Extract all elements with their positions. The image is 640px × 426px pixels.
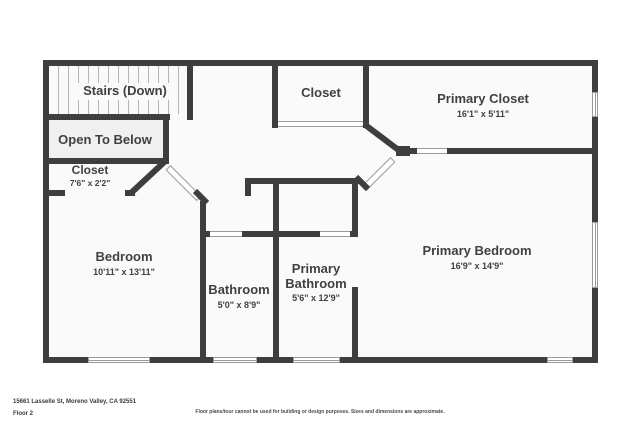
room-name-bedroom: Bedroom [93, 250, 155, 265]
door-bathroom [210, 231, 242, 237]
door-primary-closet [417, 148, 447, 154]
window-bedroom [88, 357, 150, 363]
wall-hall-top [245, 178, 360, 184]
room-name-primary-bedroom: Primary Bedroom [422, 244, 531, 259]
room-dims-primary-bedroom: 16'9" x 14'9" [422, 261, 531, 271]
room-label-primary-bathroom: Primary Bathroom 5'6" x 12'9" [277, 262, 355, 303]
room-label-bathroom: Bathroom 5'0" x 8'9" [208, 283, 269, 310]
wall-center-right [352, 178, 358, 237]
room-name-primary-closet: Primary Closet [437, 92, 529, 107]
room-label-primary-closet: Primary Closet 16'1" x 5'11" [437, 92, 529, 119]
room-dims-bathroom: 5'0" x 8'9" [208, 300, 269, 310]
room-dims-closet-left: 7'6" x 2'2" [70, 178, 110, 188]
room-label-bedroom: Bedroom 10'11" x 13'11" [93, 250, 155, 277]
room-label-primary-bedroom: Primary Bedroom 16'9" x 14'9" [422, 244, 531, 271]
wall-hall-stub [245, 184, 251, 196]
wall-bath-top-b [242, 231, 320, 237]
wall-stairs-bottom [43, 114, 170, 120]
wall-primary-closet-bottom-a [400, 148, 417, 154]
room-label-open-to-below: Open To Below [58, 133, 152, 148]
footer-disclaimer: Floor plans/tour cannot be used for buil… [0, 409, 640, 415]
wall-primary-closet-bottom-b [447, 148, 598, 154]
wall-closet-top-left [272, 60, 278, 128]
wall-bath-top-a [200, 231, 210, 237]
room-label-closet-top: Closet [301, 86, 341, 101]
wall-stairs-right [187, 60, 193, 120]
window-primary-bedroom-right [592, 222, 598, 288]
floorplan-canvas: Stairs (Down) Open To Below Closet 7'6" … [0, 0, 640, 426]
window-primary-closet [592, 92, 598, 117]
room-name-bathroom: Bathroom [208, 283, 269, 298]
footer-address: 15661 Lasselle St, Moreno Valley, CA 925… [13, 399, 136, 405]
door-primary-bathroom [320, 231, 350, 237]
room-dims-primary-closet: 16'1" x 5'11" [437, 109, 529, 119]
room-dims-bedroom: 10'11" x 13'11" [93, 267, 155, 277]
opening-closet-top [278, 121, 363, 127]
room-name-open-to-below: Open To Below [58, 133, 152, 148]
window-primary-bedroom-bottom [547, 357, 573, 363]
wall-closet-top-right [363, 60, 369, 128]
wall-outer-top [43, 60, 598, 66]
room-name-closet-left: Closet [70, 164, 110, 177]
wall-outer-left [43, 60, 49, 363]
window-bathroom [213, 357, 257, 363]
room-name-closet-top: Closet [301, 86, 341, 101]
room-name-primary-bathroom: Primary Bathroom [277, 262, 355, 291]
room-name-stairs: Stairs (Down) [77, 83, 173, 100]
room-label-stairs: Stairs (Down) [77, 82, 173, 100]
room-dims-primary-bathroom: 5'6" x 12'9" [277, 293, 355, 303]
room-label-closet-left: Closet 7'6" x 2'2" [70, 164, 110, 188]
wall-bedroom-right [200, 201, 206, 357]
wall-closet-left-bottom-a [43, 190, 65, 196]
window-primary-bathroom [293, 357, 340, 363]
